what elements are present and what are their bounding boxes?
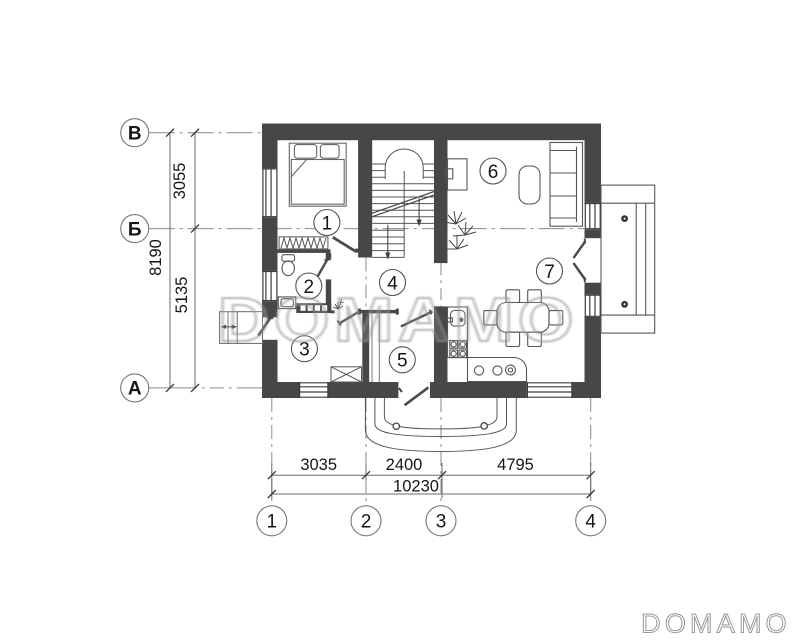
- svg-text:6: 6: [488, 162, 499, 183]
- svg-text:1: 1: [267, 512, 278, 533]
- svg-text:4795: 4795: [497, 456, 534, 474]
- svg-text:8190: 8190: [147, 239, 165, 276]
- svg-text:4: 4: [585, 512, 596, 533]
- svg-text:7: 7: [544, 262, 555, 283]
- svg-text:3: 3: [436, 512, 447, 533]
- svg-text:Б: Б: [128, 219, 142, 240]
- svg-text:3055: 3055: [171, 163, 189, 200]
- svg-text:2400: 2400: [386, 456, 423, 474]
- svg-text:В: В: [128, 124, 142, 145]
- svg-text:DOMAMO: DOMAMO: [218, 286, 578, 355]
- svg-text:5135: 5135: [173, 277, 191, 314]
- svg-text:DOMAMO: DOMAMO: [641, 609, 791, 639]
- svg-text:10230: 10230: [393, 478, 439, 496]
- svg-text:1: 1: [322, 213, 333, 234]
- svg-text:3035: 3035: [300, 456, 337, 474]
- svg-text:2: 2: [361, 512, 372, 533]
- svg-text:А: А: [128, 379, 142, 400]
